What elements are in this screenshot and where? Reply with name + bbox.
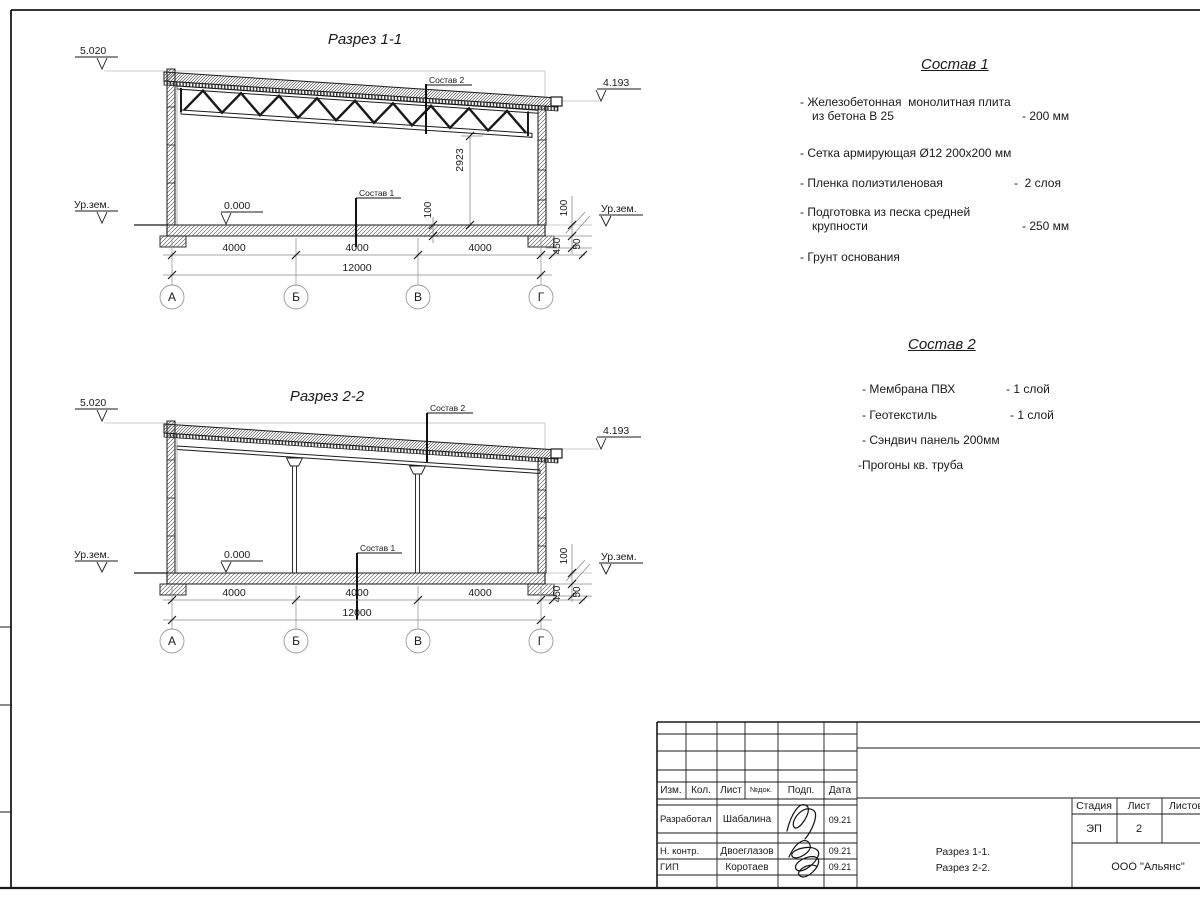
axis-g: Г	[538, 290, 545, 304]
spec1-value: - 2 слоя	[1014, 176, 1061, 190]
role-razrabotal: Разработал	[660, 814, 712, 825]
section-1-title: Разрез 1-1	[328, 31, 402, 48]
axis-g-2: Г	[538, 634, 545, 648]
axis-b-2: Б	[292, 634, 300, 648]
leader-label-roof: Состав 2	[429, 75, 465, 85]
spec1-row: - Грунт основания	[800, 250, 900, 264]
leader-label-floor: Состав 1	[359, 188, 395, 198]
bottom-dims-2: 4000 4000 4000 12000	[163, 586, 587, 630]
spec1-row: - Пленка полиэтиленовая	[800, 176, 943, 190]
title-block: Изм. Кол. Лист №док. Подп. Дата Разработ…	[657, 722, 1200, 888]
col-list: Лист	[720, 785, 742, 796]
dim-100: 100	[559, 199, 570, 216]
left-margin-ticks	[0, 627, 11, 812]
axis-b: Б	[292, 290, 300, 304]
spec1-row: крупности	[812, 219, 868, 233]
spec1-value: - 250 мм	[1022, 219, 1069, 233]
date-gip: 09.21	[829, 862, 852, 872]
dim-total: 12000	[342, 262, 371, 274]
dim-total-2: 12000	[342, 607, 371, 619]
elevation-label-2: 5.020	[80, 397, 106, 409]
col-ndok: №док.	[750, 785, 772, 794]
foundation-left	[160, 236, 186, 247]
stadia-value: ЭП	[1086, 823, 1102, 835]
roof-2	[164, 424, 562, 474]
left-wall-2	[167, 421, 175, 573]
axis-v-2: В	[414, 634, 422, 648]
spec1-value: - 200 мм	[1022, 109, 1069, 123]
spec2-value: - 1 слой	[1010, 408, 1054, 422]
grid-axes-2: А Б В Г	[160, 629, 553, 653]
dim-450: 450	[552, 237, 563, 254]
roof-edge-box-2	[551, 449, 562, 458]
dim-bay-1-2: 4000	[222, 587, 246, 599]
list-value: 2	[1136, 823, 1142, 835]
dim-100-2: 100	[559, 547, 570, 564]
stadia-label: Стадия	[1076, 800, 1112, 812]
leader-label-roof-2: Состав 2	[430, 403, 466, 413]
role-nkontr: Н. контр.	[660, 846, 699, 857]
section-1-drawing: Разрез 1-1	[74, 31, 643, 309]
dim-bay-3: 4000	[468, 242, 492, 254]
right-wall	[538, 106, 546, 225]
drawing-canvas: Разрез 1-1	[0, 0, 1200, 900]
axis-v: В	[414, 290, 422, 304]
elevation-marks-2	[75, 409, 643, 574]
column-v	[416, 474, 420, 573]
date-razrabotal: 09.21	[829, 815, 852, 825]
ground-label-right-2: Ур.зем.	[601, 551, 637, 563]
ground-label-right: Ур.зем.	[601, 203, 637, 215]
bottom-dims-1: 4000 4000 4000 12000	[163, 238, 587, 285]
name-razrabotal: Шабалина	[723, 813, 772, 825]
column-capital-b	[287, 458, 303, 466]
leaders-2: Состав 2 Состав 1	[357, 403, 473, 620]
col-data: Дата	[829, 785, 852, 796]
grid-axes-1: А Б В Г	[160, 285, 553, 309]
signature-razrabotal	[787, 805, 816, 839]
spec1-title: Состав 1	[921, 56, 989, 73]
company-name: ООО "Альянс"	[1111, 861, 1185, 873]
name-gip: Коротаев	[725, 862, 768, 873]
right-wall-2	[538, 458, 546, 573]
elevation-label-right-2: 4.193	[603, 425, 629, 437]
spec2-title: Состав 2	[908, 336, 976, 353]
column-capital-v	[410, 466, 426, 474]
col-izm: Изм.	[660, 785, 681, 796]
section-2-title: Разрез 2-2	[290, 388, 365, 405]
elevation-label-right: 4.193	[603, 77, 629, 89]
name-nkontr: Двоеглазов	[720, 846, 773, 857]
drawing-title-line1: Разрез 1-1.	[936, 846, 990, 858]
dim-50-2: 50	[572, 586, 583, 598]
foundation-left-2	[160, 584, 186, 595]
col-kol: Кол.	[691, 785, 711, 796]
listov-label: Листов	[1169, 800, 1200, 812]
drawing-title-line2: Разрез 2-2.	[936, 862, 990, 874]
col-podp: Подп.	[788, 785, 815, 796]
ground-label-left: Ур.зем.	[74, 199, 110, 211]
spec2-value: - 1 слой	[1006, 382, 1050, 396]
zero-level-label: 0.000	[224, 200, 250, 212]
zero-level-label-2: 0.000	[224, 549, 250, 561]
section-2-drawing: Разрез 2-2	[74, 388, 643, 653]
truss-bottom-chord	[181, 110, 532, 137]
role-gip: ГИП	[660, 862, 679, 873]
roof-edge-box	[551, 97, 562, 106]
spec2-row: - Мембрана ПВХ	[862, 382, 955, 396]
leader-label-floor-2: Состав 1	[360, 543, 396, 553]
elevation-label: 5.020	[80, 45, 106, 57]
dim-bay-1: 4000	[222, 242, 246, 254]
column-b	[293, 466, 297, 573]
list-label: Лист	[1128, 800, 1151, 812]
elevation-marks-1	[75, 57, 643, 226]
dim-bay-2-2: 4000	[345, 587, 369, 599]
dim-bay-3-2: 4000	[468, 587, 492, 599]
spec1-row: из бетона В 25	[812, 109, 894, 123]
ground-label-left-2: Ур.зем.	[74, 549, 110, 561]
spec2-row: -Прогоны кв. труба	[858, 458, 963, 472]
drawing-sheet: Разрез 1-1	[0, 0, 1200, 900]
spec1-row: - Железобетонная монолитная плита	[800, 95, 1011, 109]
spec1-row: - Сетка армирующая Ø12 200х200 мм	[800, 146, 1011, 160]
axis-a: А	[168, 290, 176, 304]
axis-a-2: А	[168, 634, 176, 648]
dim-bay-2: 4000	[345, 242, 369, 254]
spec1-row: - Подготовка из песка средней	[800, 205, 970, 219]
left-wall	[167, 69, 175, 225]
dim-truss-height: 2923	[454, 148, 466, 172]
spec2-row: - Геотекстиль	[862, 408, 937, 422]
date-nkontr: 09.21	[829, 846, 852, 856]
dim-50: 50	[572, 238, 583, 250]
dim-slab-100: 100	[423, 201, 434, 218]
spec2-row: - Сэндвич панель 200мм	[862, 433, 1000, 447]
